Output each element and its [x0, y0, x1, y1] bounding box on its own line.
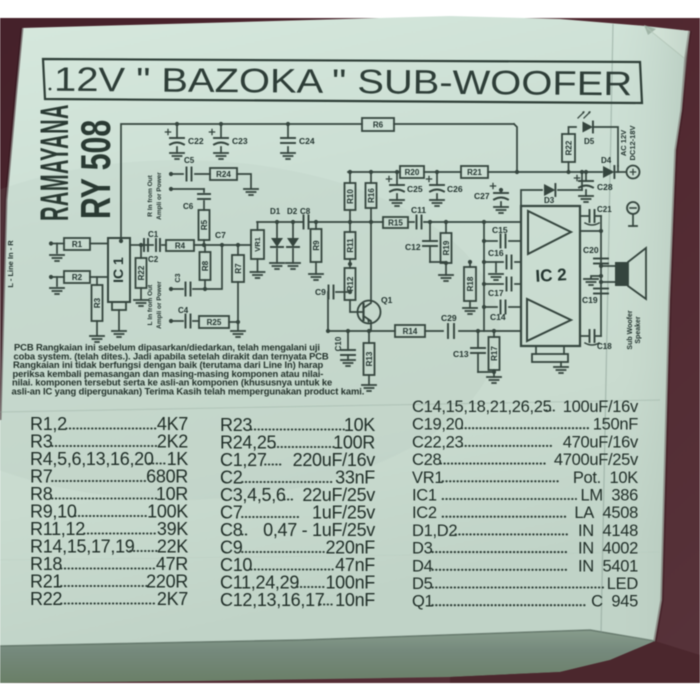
svg-text:C3: C3: [175, 273, 182, 282]
svg-text:100uF/16v: 100uF/16v: [563, 398, 639, 416]
svg-text:R3: R3: [93, 297, 102, 308]
svg-text:R22: R22: [30, 589, 62, 609]
svg-text:C21: C21: [597, 205, 612, 214]
svg-text:L In from Out: L In from Out: [147, 284, 154, 326]
svg-text:Pot. 10K: Pot. 10K: [573, 469, 638, 487]
svg-text:R20: R20: [405, 168, 420, 177]
svg-text:C27: C27: [474, 191, 490, 201]
svg-text:R19: R19: [442, 240, 451, 255]
svg-text:R22: R22: [137, 265, 146, 280]
svg-text:4700uF/25v: 4700uF/25v: [554, 451, 639, 469]
svg-text:C10: C10: [334, 336, 343, 351]
svg-text:VR1: VR1: [253, 237, 262, 252]
svg-text:Ampli or Power: Ampli or Power: [156, 172, 163, 220]
svg-text:12V " BAZOKA " SUB-WOOFER: 12V " BAZOKA " SUB-WOOFER: [54, 61, 632, 104]
svg-text:C28: C28: [412, 451, 441, 469]
svg-text:D4: D4: [601, 156, 612, 165]
svg-text:R In from Out: R In from Out: [147, 174, 154, 216]
svg-text:C24: C24: [299, 136, 315, 146]
svg-text:IC2: IC2: [412, 504, 437, 522]
svg-text:C29: C29: [441, 313, 457, 323]
svg-text:D1: D1: [270, 207, 281, 216]
svg-text:C19,20: C19,20: [412, 416, 464, 434]
svg-text:R1: R1: [72, 240, 83, 249]
svg-text:R13: R13: [365, 351, 374, 366]
svg-text:C7: C7: [215, 230, 226, 240]
svg-text:LA 4508: LA 4508: [574, 504, 638, 522]
svg-text:IC 1: IC 1: [110, 257, 126, 283]
svg-text:C14,15,18,21,26,25: C14,15,18,21,26,25: [412, 398, 552, 416]
svg-text:DC12-18V: DC12-18V: [628, 125, 637, 160]
svg-text:R25: R25: [207, 318, 222, 327]
svg-text:C8: C8: [300, 207, 311, 216]
svg-text:C23: C23: [232, 136, 248, 146]
svg-text:R5: R5: [200, 219, 209, 230]
svg-text:Q1: Q1: [381, 295, 393, 305]
svg-text:C18: C18: [597, 342, 612, 351]
svg-text:R10: R10: [346, 189, 355, 204]
svg-text:R2: R2: [72, 273, 83, 282]
svg-text:D1,D2: D1,D2: [412, 522, 457, 540]
svg-text:RAMAYANA: RAMAYANA: [31, 104, 77, 221]
svg-text:C25: C25: [407, 184, 423, 194]
svg-text:LM 386: LM 386: [580, 487, 638, 505]
svg-text:C12,13,16,17: C12,13,16,17: [220, 590, 325, 610]
svg-text:IN 4002: IN 4002: [578, 540, 638, 558]
svg-text:R12: R12: [346, 276, 355, 291]
svg-text:R4: R4: [175, 241, 186, 250]
svg-text:C11: C11: [411, 205, 426, 215]
svg-text:C1: C1: [148, 230, 159, 239]
svg-text:R7: R7: [234, 263, 243, 274]
svg-text:C16: C16: [488, 248, 504, 258]
svg-text:D5: D5: [584, 137, 595, 146]
svg-text:C12: C12: [405, 242, 421, 252]
svg-text:L - Line In - R: L - Line In - R: [6, 240, 15, 288]
svg-text:470uF/16v: 470uF/16v: [563, 433, 639, 451]
svg-text:R24: R24: [216, 170, 231, 179]
svg-text:Sub Woofer: Sub Woofer: [627, 310, 634, 349]
svg-text:R16: R16: [367, 188, 376, 203]
svg-text:D5: D5: [412, 575, 433, 593]
svg-text:R11: R11: [346, 238, 355, 253]
svg-text:C14: C14: [490, 312, 506, 322]
svg-text:C9: C9: [315, 287, 326, 297]
svg-text:D3: D3: [544, 196, 555, 205]
svg-text:C4: C4: [178, 306, 189, 315]
svg-text:C22,23: C22,23: [412, 433, 464, 451]
svg-text:10nF: 10nF: [335, 590, 375, 610]
svg-text:R8: R8: [201, 260, 210, 271]
svg-text:IC 2: IC 2: [535, 265, 567, 286]
svg-text:asli-an IC yang dipergunakan): asli-an IC yang dipergunakan) Terima Kas…: [12, 386, 365, 397]
svg-text:LED: LED: [607, 575, 639, 593]
svg-text:IN 4148: IN 4148: [578, 522, 638, 540]
svg-text:D4: D4: [412, 557, 433, 575]
svg-text:C2: C2: [148, 255, 159, 264]
svg-text:IN 5401: IN 5401: [578, 557, 638, 575]
svg-text:C19: C19: [582, 295, 598, 305]
svg-text:C17: C17: [488, 288, 504, 298]
svg-text:C28: C28: [597, 182, 613, 192]
svg-text:D3: D3: [412, 540, 433, 558]
svg-text:AC 12V: AC 12V: [619, 130, 628, 156]
svg-text:IC1: IC1: [412, 487, 437, 505]
svg-text:R6: R6: [373, 120, 384, 129]
svg-text:Q1: Q1: [412, 593, 434, 611]
svg-text:R22: R22: [564, 140, 573, 155]
svg-text:Speaker: Speaker: [635, 316, 642, 344]
svg-text:C 945: C 945: [591, 593, 638, 611]
svg-text:R17: R17: [490, 346, 499, 361]
svg-text:Ampli or Power: Ampli or Power: [156, 281, 163, 329]
svg-text:R14: R14: [403, 327, 418, 336]
svg-text:R9: R9: [312, 240, 321, 251]
svg-text:C5: C5: [184, 156, 195, 165]
svg-text:C6: C6: [183, 202, 194, 211]
svg-text:150nF: 150nF: [593, 416, 639, 434]
svg-text:VR1: VR1: [412, 469, 443, 487]
svg-text:C13: C13: [453, 349, 469, 359]
svg-text:2K7: 2K7: [157, 589, 188, 609]
svg-text:C15: C15: [492, 225, 508, 235]
svg-text:D2: D2: [287, 207, 298, 216]
svg-text:R15: R15: [388, 218, 403, 227]
svg-text:R18: R18: [466, 276, 475, 291]
svg-text:C20: C20: [583, 245, 599, 255]
svg-text:RY 508: RY 508: [72, 120, 119, 219]
svg-text:R21: R21: [467, 168, 482, 177]
svg-text:C26: C26: [447, 184, 463, 194]
svg-text:C22: C22: [188, 136, 204, 146]
